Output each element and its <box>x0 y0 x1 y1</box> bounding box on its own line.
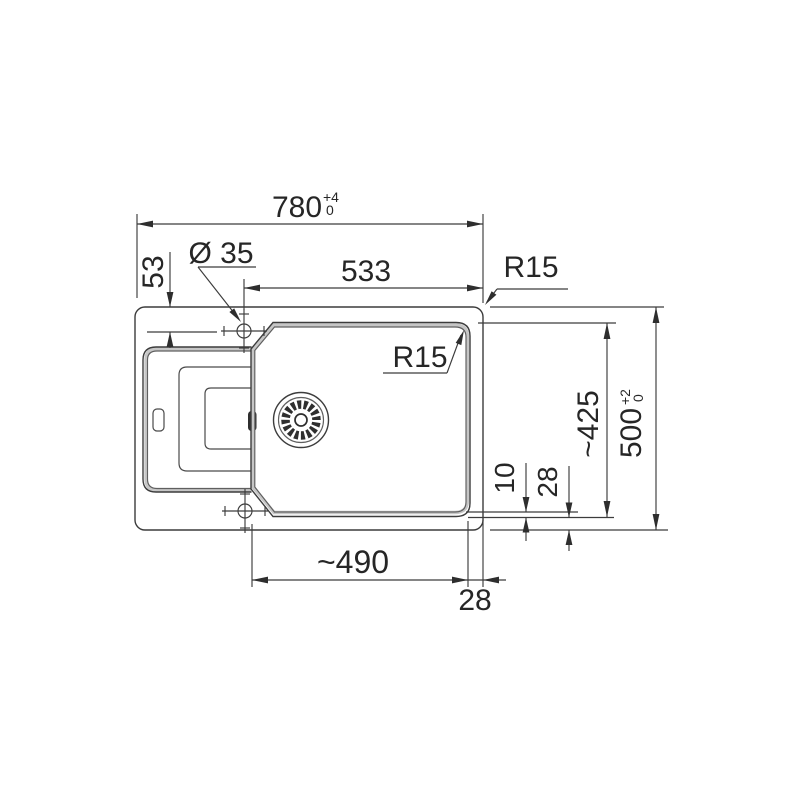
dim-bowl-width: 533 <box>244 255 483 310</box>
arrowhead <box>566 530 573 545</box>
dim-hole-to-bowl-edge-label: 10 <box>489 462 520 493</box>
drainer-edge-band <box>146 349 251 490</box>
sink-technical-drawing-page: 780 +4 0 533 Ø 35 53 R15 R15 <box>0 0 800 800</box>
dim-corner-radius-bowl: R15 <box>383 330 464 374</box>
drainer-section <box>143 347 257 492</box>
drain-strainer <box>274 393 329 448</box>
arrowhead <box>566 503 573 518</box>
arrowhead <box>523 497 530 512</box>
arrowhead <box>485 291 496 305</box>
dim-rim-bottom: 28 <box>532 466 572 551</box>
arrowhead <box>167 332 174 347</box>
arrowhead <box>467 285 483 292</box>
drainer-handle-slot <box>153 409 164 431</box>
dim-overall-depth-label: 500 <box>615 408 648 458</box>
dim-tap-hole-diameter: Ø 35 <box>188 237 256 322</box>
arrowhead <box>467 221 483 228</box>
dim-corner-radius-outer-label: R15 <box>503 251 558 284</box>
arrowhead <box>252 577 268 584</box>
dim-bowl-bottom-width: ~490 <box>252 521 468 587</box>
dim-bowl-bottom-width-label: ~490 <box>317 544 389 580</box>
dim-corner-radius-outer: R15 <box>485 251 568 305</box>
arrowhead <box>653 514 660 530</box>
dim-corner-radius-bowl-label: R15 <box>392 341 447 374</box>
arrowhead <box>653 307 660 323</box>
drainer-step-profile <box>179 367 251 471</box>
dim-bowl-width-label: 533 <box>341 255 391 288</box>
dim-rim-right: 28 <box>458 520 506 617</box>
arrowhead <box>167 292 174 307</box>
dim-tap-hole-label: Ø 35 <box>188 237 253 270</box>
dim-overall-depth-tol-minus: 0 <box>630 394 646 402</box>
dim-bowl-depth-label: ~425 <box>572 390 605 458</box>
dim-tap-hole-offset-label: 53 <box>137 255 170 288</box>
arrowhead <box>229 308 241 322</box>
arrowhead <box>604 501 611 517</box>
drainer-inner-profile <box>205 388 251 449</box>
sink-technical-drawing: 780 +4 0 533 Ø 35 53 R15 R15 <box>0 0 800 800</box>
dim-rim-right-label: 28 <box>458 584 491 617</box>
arrowhead <box>483 577 499 584</box>
arrowhead <box>452 577 468 584</box>
drainer-outer-line <box>143 347 251 492</box>
arrowhead <box>456 330 464 345</box>
dim-rim-bottom-label: 28 <box>532 466 563 497</box>
dim-overall-width-label: 780 <box>272 191 322 224</box>
strainer-center <box>295 414 307 426</box>
arrowhead <box>137 221 153 228</box>
arrowhead <box>244 285 260 292</box>
arrowhead <box>604 323 611 339</box>
dim-overall-width-tol-minus: 0 <box>326 202 334 218</box>
drainer-inner-line <box>148 351 252 489</box>
arrowhead <box>523 518 530 533</box>
